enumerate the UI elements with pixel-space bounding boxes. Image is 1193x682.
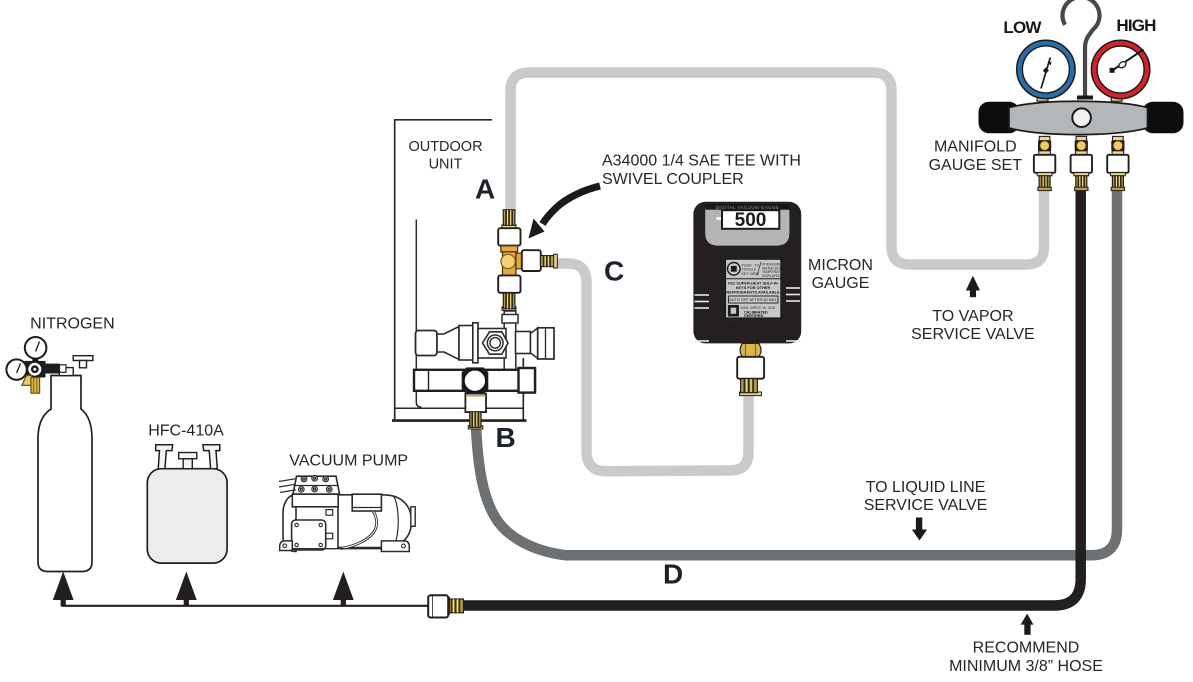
svg-text:UNIT: UNIT (429, 157, 463, 173)
svg-text:VACUUM PUMP: VACUUM PUMP (289, 453, 408, 470)
svg-text:AUTO OFF AFTER 60 MIN.: AUTO OFF AFTER 60 MIN. (729, 297, 777, 302)
svg-text:SERVICE VALVE: SERVICE VALVE (864, 497, 988, 514)
svg-text:MANIFOLD: MANIFOLD (934, 139, 1017, 156)
svg-text:LOW: LOW (1003, 18, 1042, 37)
svg-text:CE/FC: CE/FC (727, 319, 738, 323)
svg-text:MICRON: MICRON (808, 257, 873, 274)
svg-text:DISPLAYED: DISPLAYED (762, 274, 781, 278)
svg-text:500: 500 (735, 210, 767, 231)
svg-text:A: A (475, 174, 495, 205)
svg-text:A34000 1/4 SAE TEE WITH: A34000 1/4 SAE TEE WITH (602, 152, 801, 169)
svg-text:MINIMUM 3/8” HOSE: MINIMUM 3/8” HOSE (949, 658, 1103, 675)
svg-text:GAUGE SET: GAUGE SET (929, 157, 1023, 174)
svg-text:SERVICE VALVE: SERVICE VALVE (911, 326, 1035, 343)
svg-text:GAUGE: GAUGE (812, 275, 870, 292)
svg-text:D: D (663, 559, 683, 590)
svg-text:RECOMMEND: RECOMMEND (973, 639, 1080, 656)
svg-text:NITROGEN: NITROGEN (30, 316, 114, 333)
svg-text:MAX. INPUT 10: 32W: MAX. INPUT 10: 32W (741, 306, 776, 310)
svg-text:OUTDOOR: OUTDOOR (408, 139, 482, 155)
svg-text:C: C (604, 256, 624, 287)
svg-text:HFC-410A: HFC-410A (148, 422, 224, 439)
svg-text:TO VAPOR: TO VAPOR (932, 308, 1013, 325)
svg-text:HIGH: HIGH (1116, 16, 1156, 35)
svg-text:REFRIGERANTS AVAILABLE: REFRIGERANTS AVAILABLE (726, 290, 780, 295)
svg-text:TO LIQUID LINE: TO LIQUID LINE (866, 479, 986, 496)
svg-text:B: B (496, 422, 516, 453)
svg-text:SWIVEL COUPLER: SWIVEL COUPLER (602, 171, 744, 188)
svg-text:CERTIFIED: CERTIFIED (744, 314, 764, 318)
